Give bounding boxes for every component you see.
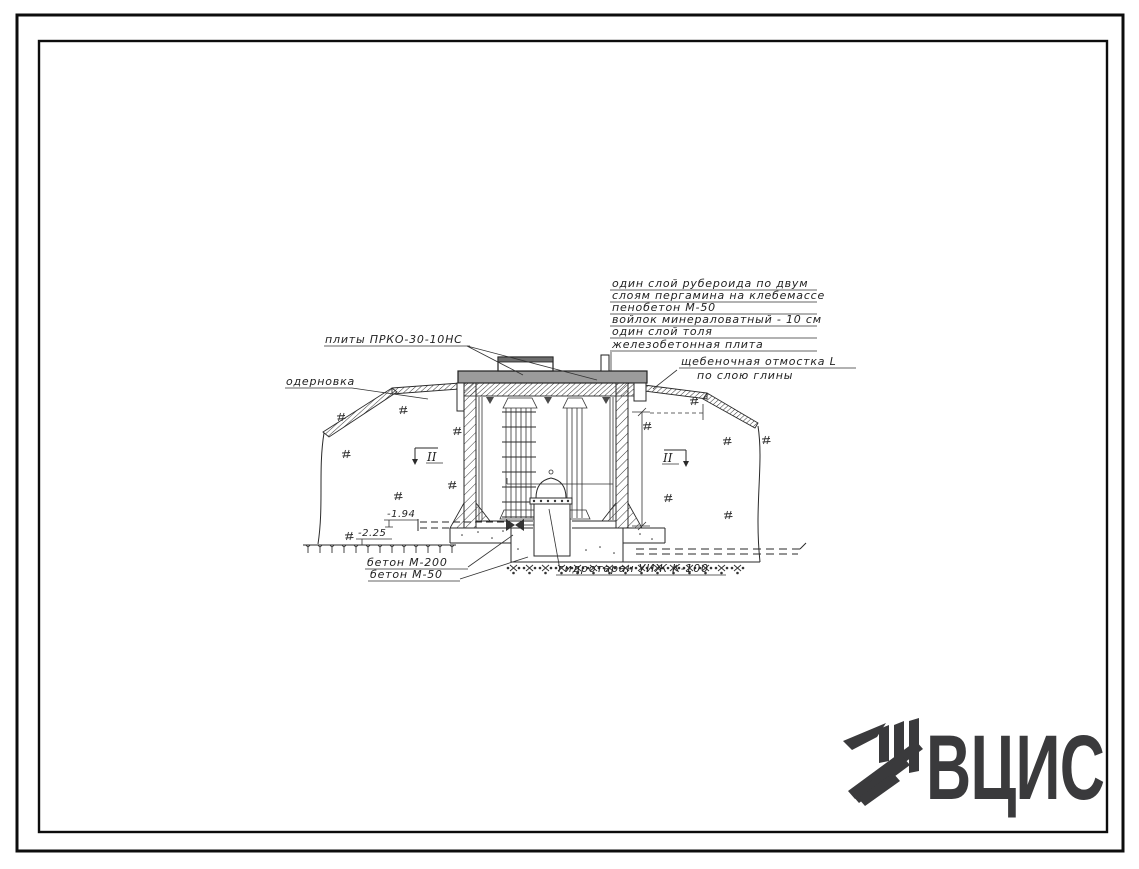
elevation-pipe-value: -1.94	[387, 509, 415, 520]
apron-label-line1: щебеночная отмостка L	[681, 355, 837, 368]
wall-right	[616, 383, 628, 528]
apron-label: щебеночная отмостка L по слою глины	[653, 355, 856, 389]
ground-hatch-marks	[306, 545, 455, 553]
vent-pipe	[601, 355, 609, 371]
gravel-apron-slope	[703, 393, 758, 428]
concrete-m50-text: бетон М-50	[370, 568, 443, 581]
gravel-apron-flat	[644, 385, 707, 399]
wall-left	[464, 383, 476, 528]
mound-left-edge	[318, 433, 324, 544]
concrete-m200-leader	[468, 535, 513, 567]
section-right-label: II	[662, 451, 673, 465]
outlet-pipe-right	[636, 543, 806, 554]
roof-edge-block-right	[634, 383, 646, 401]
apron-leader	[653, 370, 677, 389]
roof-note-line-6: железобетонная плита	[611, 338, 764, 351]
reservoir-cross-section-drawing: один слой рубероида по двум слоям пергам…	[285, 277, 856, 581]
roof-note-line-5: один слой толя	[612, 325, 713, 338]
vcis-logo-emblem	[843, 718, 923, 806]
ram-pedestal	[534, 504, 570, 556]
plates-label-text: плиты ПРКО-30-10НС	[325, 333, 463, 346]
chamber-structure	[418, 355, 806, 562]
roof-edge-block-left	[457, 383, 464, 411]
section-left-label: II	[426, 450, 437, 464]
vcis-logo-text: ВЦИС	[926, 716, 1104, 819]
hydraulic-ram-text: гидротаран УИЖ К-100	[558, 562, 709, 575]
sod-label-text: одерновка	[286, 375, 355, 388]
drawing-sheet: один слой рубероида по двум слоям пергам…	[0, 0, 1139, 869]
dimension-lines	[632, 404, 703, 530]
vcis-logo: ВЦИС	[843, 716, 1104, 819]
section-mark-right: II	[662, 450, 689, 467]
section-mark-left: II	[412, 448, 443, 465]
sod-strip-left-slope	[323, 388, 397, 437]
elevation-ground: -2.25	[356, 528, 392, 545]
inner-border	[39, 41, 1107, 832]
blueprint-scan-page: { "colors": { "ink": "#262626", "slab_gr…	[0, 0, 1139, 869]
sod-strip-left-flat	[392, 383, 460, 394]
mound-right-edge	[758, 426, 760, 562]
level-line	[507, 478, 613, 484]
hydraulic-ram-device	[530, 470, 572, 556]
apron-label-line2: по слою глины	[697, 369, 793, 382]
concrete-labels: бетон М-200 бетон М-50	[365, 535, 528, 581]
elevation-ground-value: -2.25	[358, 528, 386, 539]
elevation-pipe: -1.94	[384, 509, 418, 527]
roof-slab	[458, 371, 647, 383]
